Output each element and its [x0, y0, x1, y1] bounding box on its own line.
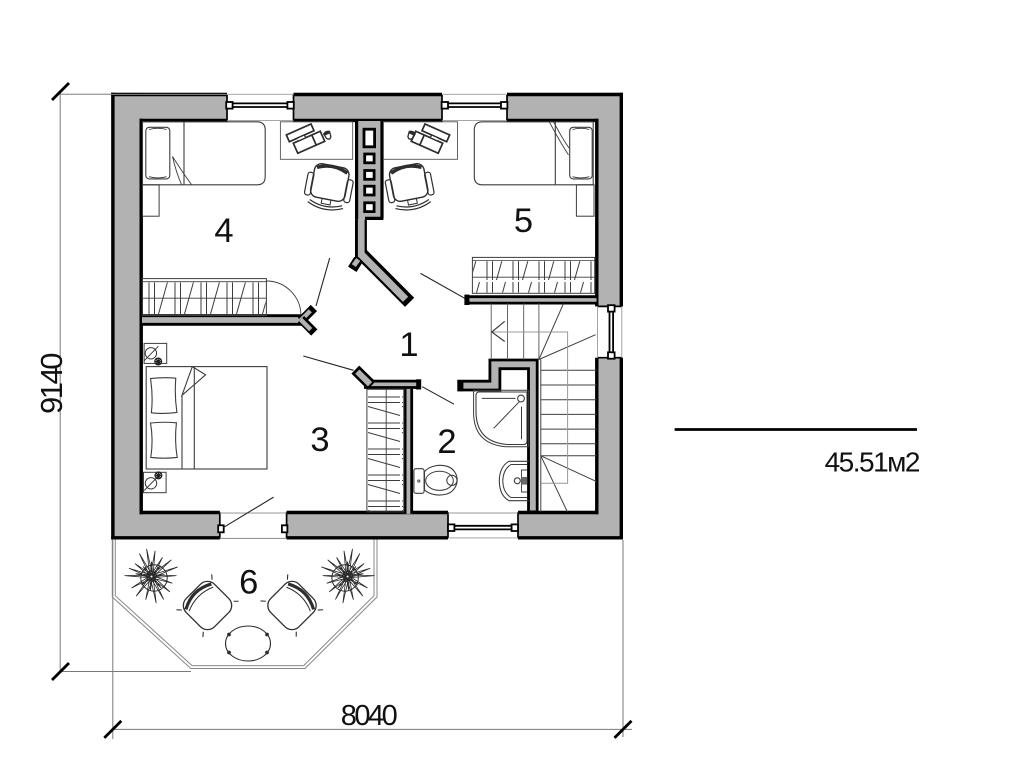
svg-text:4: 4	[214, 212, 233, 250]
svg-text:8040: 8040	[341, 700, 397, 732]
svg-text:45.51м2: 45.51м2	[825, 447, 920, 478]
svg-text:9140: 9140	[34, 353, 69, 414]
svg-text:2: 2	[437, 423, 456, 461]
svg-text:1: 1	[399, 326, 418, 364]
svg-text:5: 5	[514, 202, 533, 240]
svg-text:6: 6	[239, 564, 258, 602]
svg-text:3: 3	[310, 421, 329, 459]
